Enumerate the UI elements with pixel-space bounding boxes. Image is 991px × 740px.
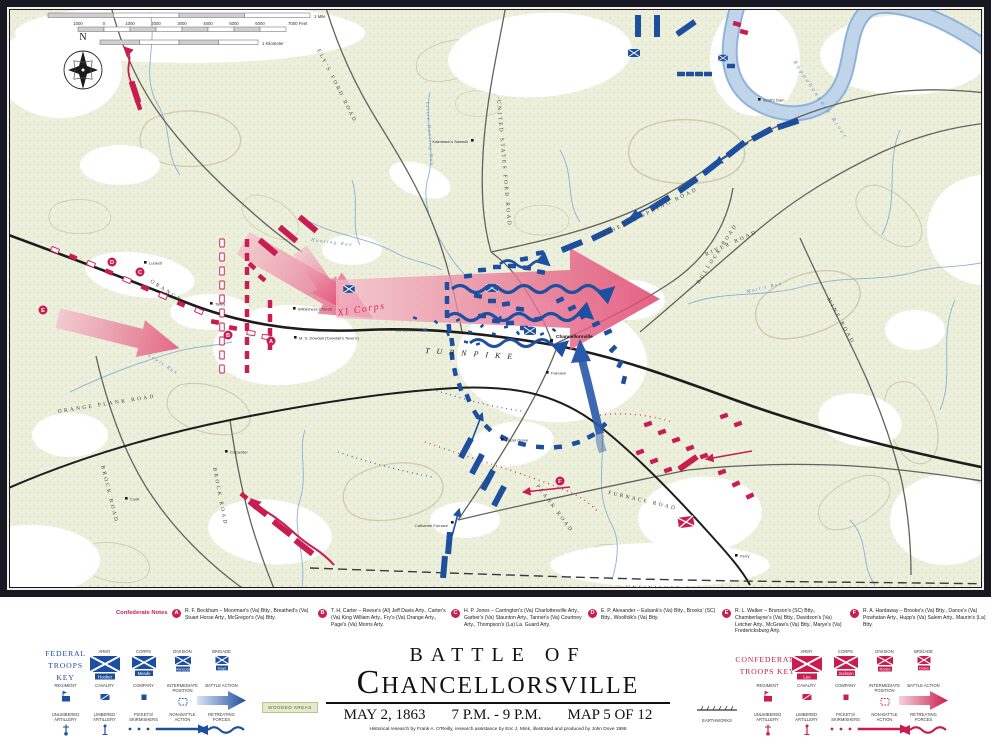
federal-limbered-artillery-icon: [97, 723, 113, 737]
note-f: F R. A. Hardaway – Brooke's (Va) Btty., …: [850, 608, 987, 628]
title-map-number: Map 5 of 12: [567, 707, 652, 724]
federal-division-label: Division: [173, 649, 191, 654]
svg-text:Lee: Lee: [803, 675, 811, 680]
confederate-nonbattle-label: Non-Battle Action: [865, 712, 904, 722]
confederate-limbered-artillery-icon: [799, 723, 815, 737]
place-wilderness-church: Wilderness Church: [298, 307, 332, 312]
title-rule: [326, 702, 670, 704]
note-c-text: H. P. Jones – Carrington's (Va) Charlott…: [464, 608, 582, 628]
svg-text:Rodes: Rodes: [879, 668, 890, 672]
federal-nonbattle-label: Non-Battle Action: [163, 712, 202, 722]
federal-retreating-forces-icon: [195, 723, 249, 737]
federal-division-flag-icon: Hancock: [171, 655, 195, 675]
confederate-company-icon: [838, 689, 854, 704]
earthworks-label: Earthworks: [688, 718, 746, 723]
scale-feet-6: 5000: [229, 21, 239, 26]
confederate-key-title: Confederate Troops Key: [748, 649, 787, 683]
federal-cavalry-icon: [97, 689, 113, 704]
note-marker-a: A: [269, 339, 273, 345]
confederate-troops-key: Confederate Troops Key Army Lee Corps Ja…: [748, 649, 943, 740]
federal-regiment-label: Regiment: [54, 683, 76, 688]
earthworks-key: Earthworks: [688, 699, 746, 724]
note-e-text: R. L. Walker – Brunson's (SC) Btty., Cha…: [735, 608, 842, 634]
federal-corps-flag-icon: Meade: [129, 655, 159, 679]
confederate-division-label: Division: [875, 649, 893, 654]
title-line1: Battle of: [318, 645, 678, 665]
note-f-letter: F: [850, 609, 859, 618]
place-talley: Talley: [215, 302, 225, 307]
confederate-battle-action-arrow-icon: [897, 689, 951, 712]
note-marker-d: D: [110, 260, 114, 266]
scale-feet-7: 6000: [255, 21, 265, 26]
place-kalmbach: Kalmbach's Sawmill: [433, 139, 469, 144]
federal-limbered-label: Limbered Artillery: [85, 712, 124, 722]
confederate-retreating-label: Retreating Forces: [904, 712, 943, 722]
note-marker-c: C: [138, 270, 142, 276]
confederate-unlimbered-label: Unlimbered Artillery: [748, 712, 787, 722]
place-old-schoolhouse: Old Schoolhouse: [395, 328, 426, 333]
confederate-regiment-icon: [760, 689, 776, 704]
svg-text:Hays: Hays: [217, 667, 226, 671]
title-credit: Historical research by Frank A. O'Reilly…: [318, 727, 678, 732]
title-block: Battle of Chancellorsville May 2, 1863 7…: [318, 645, 678, 732]
federal-corps-label: Corps: [136, 649, 151, 654]
wooded-areas-swatch: Wooded Areas: [262, 702, 318, 713]
place-cook: Cook: [130, 497, 139, 502]
svg-text:Hancock: Hancock: [175, 668, 190, 672]
place-perry: Perry: [740, 554, 750, 559]
federal-army-label: Army: [98, 649, 110, 654]
title-time: 7 p.m. - 9 p.m.: [451, 707, 541, 724]
title-date: May 2, 1863: [344, 707, 426, 724]
confederate-cavalry-label: Cavalry: [797, 683, 816, 688]
svg-text:Hooker: Hooker: [97, 675, 112, 680]
confederate-brigade-label: Brigade: [914, 649, 933, 654]
federal-pickets-label: Pickets/ Skirmishers: [124, 712, 163, 722]
federal-army-flag-icon: Hooker: [87, 655, 123, 681]
place-scotts-dam: Scott's Dam: [763, 98, 785, 103]
scale-feet-5: 4000: [203, 21, 213, 26]
confederate-retreating-forces-icon: [897, 723, 951, 737]
federal-retreating-label: Retreating Forces: [202, 712, 241, 722]
confederate-army-label: Army: [800, 649, 812, 654]
federal-troops-key: Federal Troops Key Army Hooker Corps Mea…: [46, 649, 241, 740]
note-a-text: R. F. Beckham – Moorman's (Va) Btty., Br…: [185, 608, 308, 621]
federal-unlimbered-label: Unlimbered Artillery: [46, 712, 85, 722]
scale-feet-8: 7000 Feet: [288, 21, 308, 26]
confederate-battle-action-label: Battle Action: [907, 683, 939, 688]
svg-text:Jackson: Jackson: [838, 671, 854, 676]
confederate-intermediate-position-icon: [877, 694, 893, 709]
note-a: A R. F. Beckham – Moorman's (Va) Btty., …: [172, 608, 317, 622]
federal-intermediate-position-icon: [175, 694, 191, 709]
note-c: C H. P. Jones – Carrington's (Va) Charlo…: [451, 608, 586, 628]
confederate-division-flag-icon: Rodes: [873, 655, 897, 675]
note-b-letter: B: [318, 609, 327, 618]
place-chancellorsville: Chancellorsville: [556, 334, 593, 340]
federal-company-icon: [136, 689, 152, 704]
scale-feet-4: 3000: [177, 21, 187, 26]
battle-map: XI Corps Orange Turnpike Orange Plank Ro…: [0, 0, 991, 597]
confederate-unlimbered-artillery-icon: [760, 723, 776, 737]
note-d-letter: D: [588, 609, 597, 618]
note-marker-b: B: [226, 333, 230, 339]
svg-text:Doles: Doles: [919, 667, 929, 671]
scale-feet-2: 1000: [125, 21, 135, 26]
confederate-cavalry-icon: [799, 689, 815, 704]
federal-cavalry-label: Cavalry: [95, 683, 114, 688]
note-d: D E. P. Alexander – Eubank's (Va) Btty.,…: [588, 608, 719, 622]
scale-km-label: 1 Kilometer: [262, 41, 284, 46]
confederate-pickets-label: Pickets/ Skirmishers: [826, 712, 865, 722]
federal-regiment-icon: [58, 689, 74, 704]
note-a-letter: A: [172, 609, 181, 618]
note-b: B T. H. Carter – Reese's (Al) Jeff Davis…: [318, 608, 449, 628]
federal-key-title: Federal Troops Key: [46, 649, 85, 683]
svg-text:Meade: Meade: [137, 671, 150, 676]
earthworks-icon: [695, 703, 739, 712]
federal-brigade-flag-icon: Hays: [211, 655, 233, 674]
scale-feet-0: 1000: [73, 21, 83, 26]
place-dowdall: M. S. Dowdall ('Dowdall's Tavern'): [299, 336, 360, 341]
chancellorsville-map-page: { "map": { "compass_n": "N", "scale": { …: [0, 0, 991, 740]
federal-brigade-label: Brigade: [212, 649, 231, 654]
note-c-letter: C: [451, 609, 460, 618]
compass-north-label: N: [79, 32, 86, 43]
federal-unlimbered-artillery-icon: [58, 723, 74, 737]
scale-mile-label: 1 Mile: [314, 14, 326, 19]
note-b-text: T. H. Carter – Reese's (Al) Jeff Davis A…: [331, 608, 446, 628]
note-f-text: R. A. Hardaway – Brooke's (Va) Btty., Da…: [863, 608, 986, 628]
note-marker-e: E: [41, 308, 45, 314]
federal-company-label: Company: [133, 683, 154, 688]
note-marker-f: F: [558, 479, 562, 485]
confederate-brigade-flag-icon: Doles: [913, 655, 935, 674]
place-luckett: Luckett: [149, 261, 163, 266]
federal-battle-action-label: Battle Action: [205, 683, 237, 688]
note-d-text: E. P. Alexander – Eubank's (Va) Btty., B…: [601, 608, 715, 621]
confederate-limbered-label: Limbered Artillery: [787, 712, 826, 722]
place-catharine-furnace: Catharine Furnace: [415, 523, 449, 528]
confederate-regiment-label: Regiment: [756, 683, 778, 688]
note-e-letter: E: [722, 609, 731, 618]
place-carpenter: Carpenter: [230, 450, 248, 455]
place-hazel-grove: Hazel Grove: [506, 438, 529, 443]
confederate-company-label: Company: [835, 683, 856, 688]
note-e: E R. L. Walker – Brunson's (SC) Btty., C…: [722, 608, 849, 635]
federal-battle-action-arrow-icon: [195, 689, 249, 712]
confederate-corps-label: Corps: [838, 649, 853, 654]
scale-feet-3: 2000: [151, 21, 161, 26]
place-fairview: Fairview: [551, 371, 566, 376]
confederate-corps-flag-icon: Jackson: [831, 655, 861, 679]
confederate-army-flag-icon: Lee: [789, 655, 825, 681]
title-line2: Chancellorsville: [318, 666, 678, 700]
